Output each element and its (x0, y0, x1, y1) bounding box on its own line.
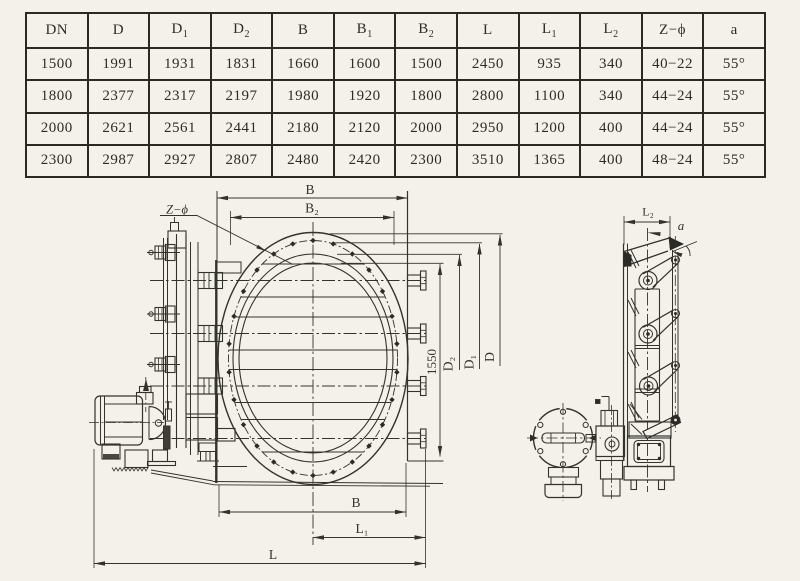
svg-text:L: L (269, 547, 277, 562)
svg-text:L₂: L₂ (642, 205, 654, 219)
svg-text:L₁: L₁ (356, 521, 369, 536)
svg-text:Z−ϕ: Z−ϕ (166, 203, 188, 217)
svg-text:B₂: B₂ (305, 201, 319, 216)
svg-text:D₂: D₂ (441, 357, 456, 371)
svg-text:D₁: D₁ (462, 355, 477, 369)
svg-text:B: B (351, 495, 360, 510)
svg-text:1550: 1550 (424, 349, 439, 375)
svg-text:D: D (482, 352, 497, 362)
svg-text:B: B (305, 182, 314, 197)
svg-text:a: a (678, 218, 685, 233)
